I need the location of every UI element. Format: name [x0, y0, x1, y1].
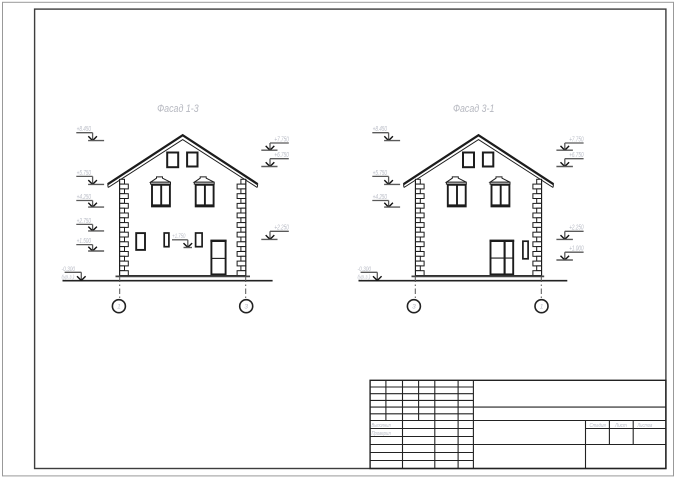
svg-text:Проверил: Проверил — [372, 431, 392, 437]
svg-text:+6.750: +6.750 — [569, 150, 583, 159]
svg-text:+1.750: +1.750 — [172, 233, 185, 240]
svg-text:3: 3 — [412, 304, 416, 311]
svg-text:+2.250: +2.250 — [569, 223, 583, 232]
svg-text:Листов: Листов — [637, 423, 653, 429]
svg-text:+1.500: +1.500 — [77, 236, 91, 245]
svg-text:3: 3 — [244, 304, 248, 311]
svg-text:Выполнил: Выполнил — [372, 423, 392, 429]
svg-text:+4.250: +4.250 — [77, 192, 91, 201]
svg-text:Стадия: Стадия — [590, 423, 606, 429]
svg-text:+2.750: +2.750 — [77, 216, 91, 225]
svg-text:+7.750: +7.750 — [569, 134, 583, 143]
svg-text:Фасад 1-3: Фасад 1-3 — [157, 103, 199, 115]
svg-text:+1.000: +1.000 — [569, 244, 583, 253]
svg-text:Фасад 3-1: Фасад 3-1 — [453, 103, 495, 115]
svg-text:+5.750: +5.750 — [77, 168, 91, 177]
svg-text:+8.450: +8.450 — [77, 124, 91, 133]
svg-text:+8.450: +8.450 — [373, 124, 387, 133]
svg-text:+2.250: +2.250 — [274, 223, 288, 232]
svg-text:+4.250: +4.250 — [373, 192, 387, 201]
svg-text:(ур.з.): (ур.з.) — [358, 275, 371, 281]
svg-text:(ур.з.): (ур.з.) — [62, 275, 75, 281]
svg-text:+5.750: +5.750 — [373, 168, 387, 177]
svg-text:+6.750: +6.750 — [274, 150, 288, 159]
svg-text:Лист: Лист — [614, 423, 627, 429]
svg-text:1: 1 — [117, 304, 121, 311]
svg-text:+7.750: +7.750 — [274, 134, 288, 143]
svg-text:1: 1 — [540, 304, 544, 311]
